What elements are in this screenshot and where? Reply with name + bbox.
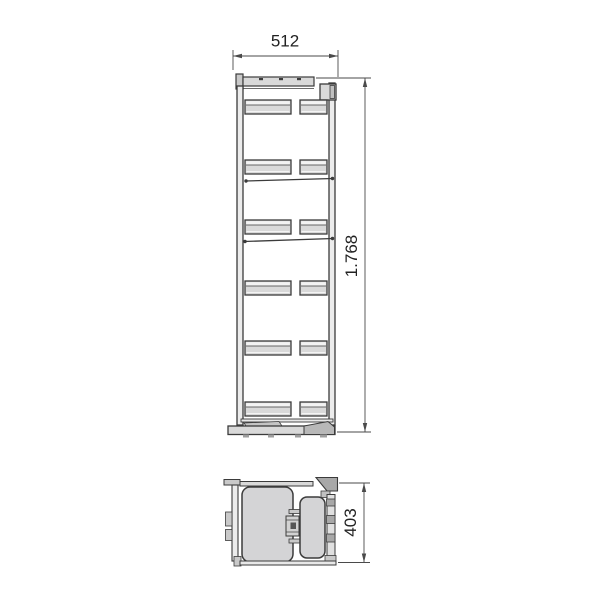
rail-clip (327, 534, 336, 542)
top-right-bracket (320, 84, 336, 100)
shelf-row (245, 160, 327, 174)
rail-rivet (259, 78, 263, 80)
width-dimension: 512 (233, 32, 338, 78)
large-basket-top (242, 487, 293, 562)
shelf-rim (301, 282, 326, 286)
height-dimension: 1.768 (316, 78, 371, 432)
plan-left-upright (226, 485, 242, 566)
shelf-row (245, 341, 327, 355)
shelf-rim (301, 342, 326, 346)
plan-rail-bar (240, 482, 313, 487)
base-foot (295, 435, 301, 438)
height-dimension-label: 1.768 (342, 235, 361, 278)
mechanism-latch (291, 523, 297, 530)
technical-drawing-page: 512 (0, 0, 600, 600)
slide-wire (244, 239, 333, 242)
shelf-rim (246, 161, 290, 165)
shelf-rim (301, 221, 326, 225)
rail-clip (327, 499, 336, 506)
arrowhead-left (233, 54, 242, 58)
shelf-row (245, 402, 327, 416)
base-assembly (228, 419, 335, 438)
shelf-rim (246, 101, 290, 105)
base-ramp (304, 422, 335, 435)
base-foot (320, 435, 327, 438)
shelf-rim (246, 282, 290, 286)
arrowhead-down (363, 423, 367, 432)
top-rail-bar (243, 77, 314, 86)
shelf-rim (246, 403, 290, 407)
drawing-svg: 512 (0, 0, 600, 600)
bottom-frame-bar (241, 419, 333, 422)
width-dimension-label: 512 (271, 32, 299, 51)
slide-wire (245, 179, 333, 182)
plan-view: 403 (224, 478, 370, 567)
shelf-rim (301, 161, 326, 165)
depth-dimension-label: 403 (341, 508, 360, 536)
right-upright (329, 83, 335, 425)
small-basket-top (300, 497, 325, 558)
rail-clip (327, 516, 336, 524)
shelf-row (245, 220, 327, 234)
shelf-rim (246, 342, 290, 346)
rail-rivet (297, 78, 301, 80)
corner-bracket (316, 478, 338, 492)
arrowhead-right (329, 54, 338, 58)
base-foot (268, 435, 274, 438)
plan-rail-end-cap (224, 480, 240, 486)
wall-clip (226, 530, 233, 541)
base-foot (243, 435, 249, 438)
top-rail (236, 74, 314, 99)
plan-rear-bar (240, 561, 336, 565)
shelf-row (245, 100, 327, 114)
shelf-row (245, 281, 327, 295)
wall-clip (226, 512, 233, 526)
shelf-rows (245, 100, 327, 416)
bracket-inner-plate (330, 86, 335, 99)
arrowhead-down (362, 554, 366, 563)
shelf-rim (301, 101, 326, 105)
rail-rivet (279, 78, 283, 80)
shelf-rim (246, 221, 290, 225)
left-upright (237, 86, 243, 425)
arrowhead-up (362, 483, 366, 492)
front-view: 512 (228, 32, 371, 438)
depth-dimension: 403 (338, 483, 370, 563)
shelf-rim (301, 403, 326, 407)
plan-right-rail (325, 495, 336, 565)
arrowhead-up (363, 78, 367, 87)
